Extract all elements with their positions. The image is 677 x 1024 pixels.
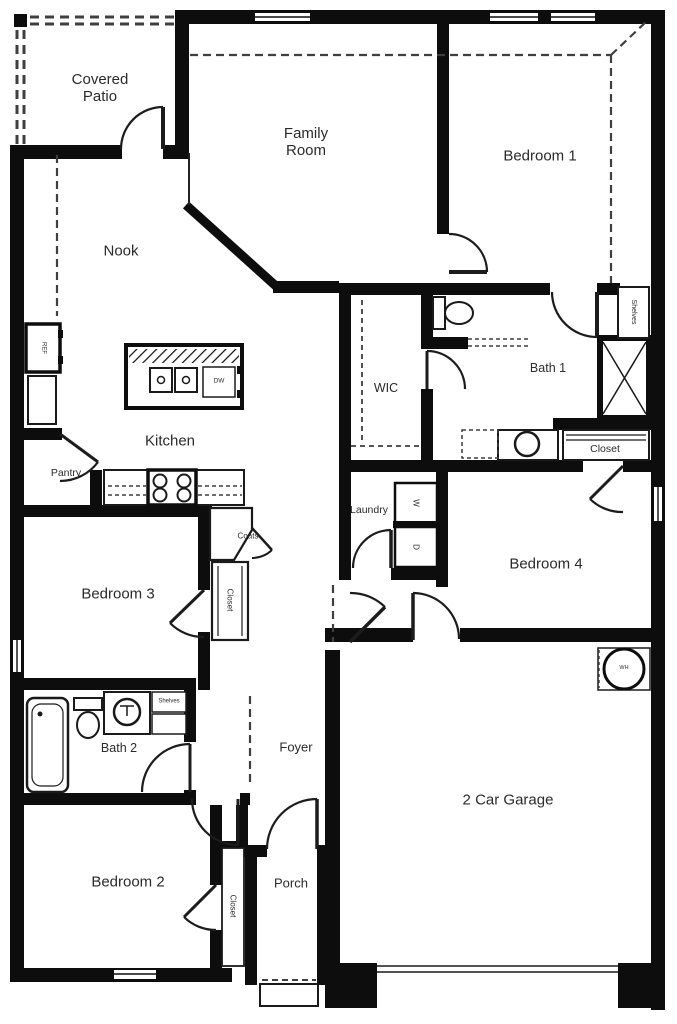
vanity-cabinet — [462, 430, 498, 458]
label-closet-bedroom2: Closet — [228, 895, 237, 918]
floor-plan: Covered Patio Family Room Bedroom 1 Nook… — [0, 0, 677, 1024]
room-label-kitchen: Kitchen — [145, 432, 195, 449]
porch-steps-icon — [260, 984, 318, 1006]
toilet-icon — [433, 297, 473, 329]
door-swing-icon — [413, 593, 459, 640]
bathtub-icon — [27, 698, 68, 792]
island-counter-hatch — [129, 349, 239, 363]
window-icon — [654, 487, 662, 521]
room-label-pantry: Pantry — [51, 467, 81, 479]
window-icon — [114, 970, 156, 979]
room-label-covered-patio: Covered Patio — [64, 71, 136, 106]
window-icon — [551, 13, 595, 21]
stove-icon — [148, 470, 196, 505]
kitchen-cabinet — [28, 376, 56, 424]
door-swing-icon — [142, 744, 190, 792]
label-refrigerator: REF — [40, 342, 47, 354]
room-label-bedroom-1: Bedroom 1 — [503, 147, 576, 164]
kitchen-island — [126, 345, 242, 408]
door-swing-icon — [170, 590, 204, 637]
sink-icon — [104, 692, 150, 734]
label-water-heater: WH — [619, 665, 628, 671]
label-washer: W — [411, 499, 420, 507]
door-swing-icon — [427, 351, 465, 389]
door-swing-icon — [449, 234, 487, 272]
garage-door-icon — [377, 966, 618, 972]
kitchen-counter — [104, 470, 244, 505]
label-shelves-bedroom1: Shelves — [629, 300, 637, 325]
room-label-laundry: Laundry — [350, 504, 388, 516]
sink-icon — [498, 430, 558, 460]
room-label-foyer: Foyer — [279, 741, 312, 756]
window-icon — [490, 13, 538, 21]
room-label-bedroom-4: Bedroom 4 — [509, 555, 582, 572]
room-label-porch: Porch — [274, 877, 308, 892]
door-swing-icon — [184, 885, 216, 930]
toilet-icon — [74, 698, 102, 738]
wic-shelving — [351, 300, 421, 446]
angled-wall — [186, 205, 277, 287]
room-label-nook: Nook — [103, 242, 138, 259]
room-label-bath-1: Bath 1 — [530, 361, 566, 375]
shower-icon — [600, 338, 649, 418]
room-label-wic: WIC — [374, 381, 398, 395]
label-closet-bath1: Closet — [590, 443, 620, 455]
room-label-bedroom-2: Bedroom 2 — [91, 873, 164, 890]
label-closet-bedroom3: Closet — [225, 589, 234, 612]
door-swing-icon — [590, 466, 623, 512]
room-label-bath-2: Bath 2 — [101, 741, 137, 755]
room-label-garage: 2 Car Garage — [463, 791, 554, 808]
room-label-family-room: Family Room — [276, 125, 336, 160]
door-swing-icon — [267, 799, 317, 849]
laundry-fixtures — [393, 483, 439, 567]
label-shelves-bath2: Shelves — [158, 699, 179, 706]
room-label-bedroom-3: Bedroom 3 — [81, 585, 154, 602]
compartment-opening — [468, 339, 528, 346]
label-dishwasher: DW — [214, 377, 225, 384]
window-icon — [255, 13, 310, 21]
window-icon — [13, 640, 21, 672]
label-dryer: D — [411, 544, 420, 550]
door-swing-icon — [121, 107, 163, 149]
door-swing-icon — [353, 530, 391, 568]
label-coats-closet: Coats — [238, 531, 259, 540]
door-swing-icon — [552, 292, 597, 337]
